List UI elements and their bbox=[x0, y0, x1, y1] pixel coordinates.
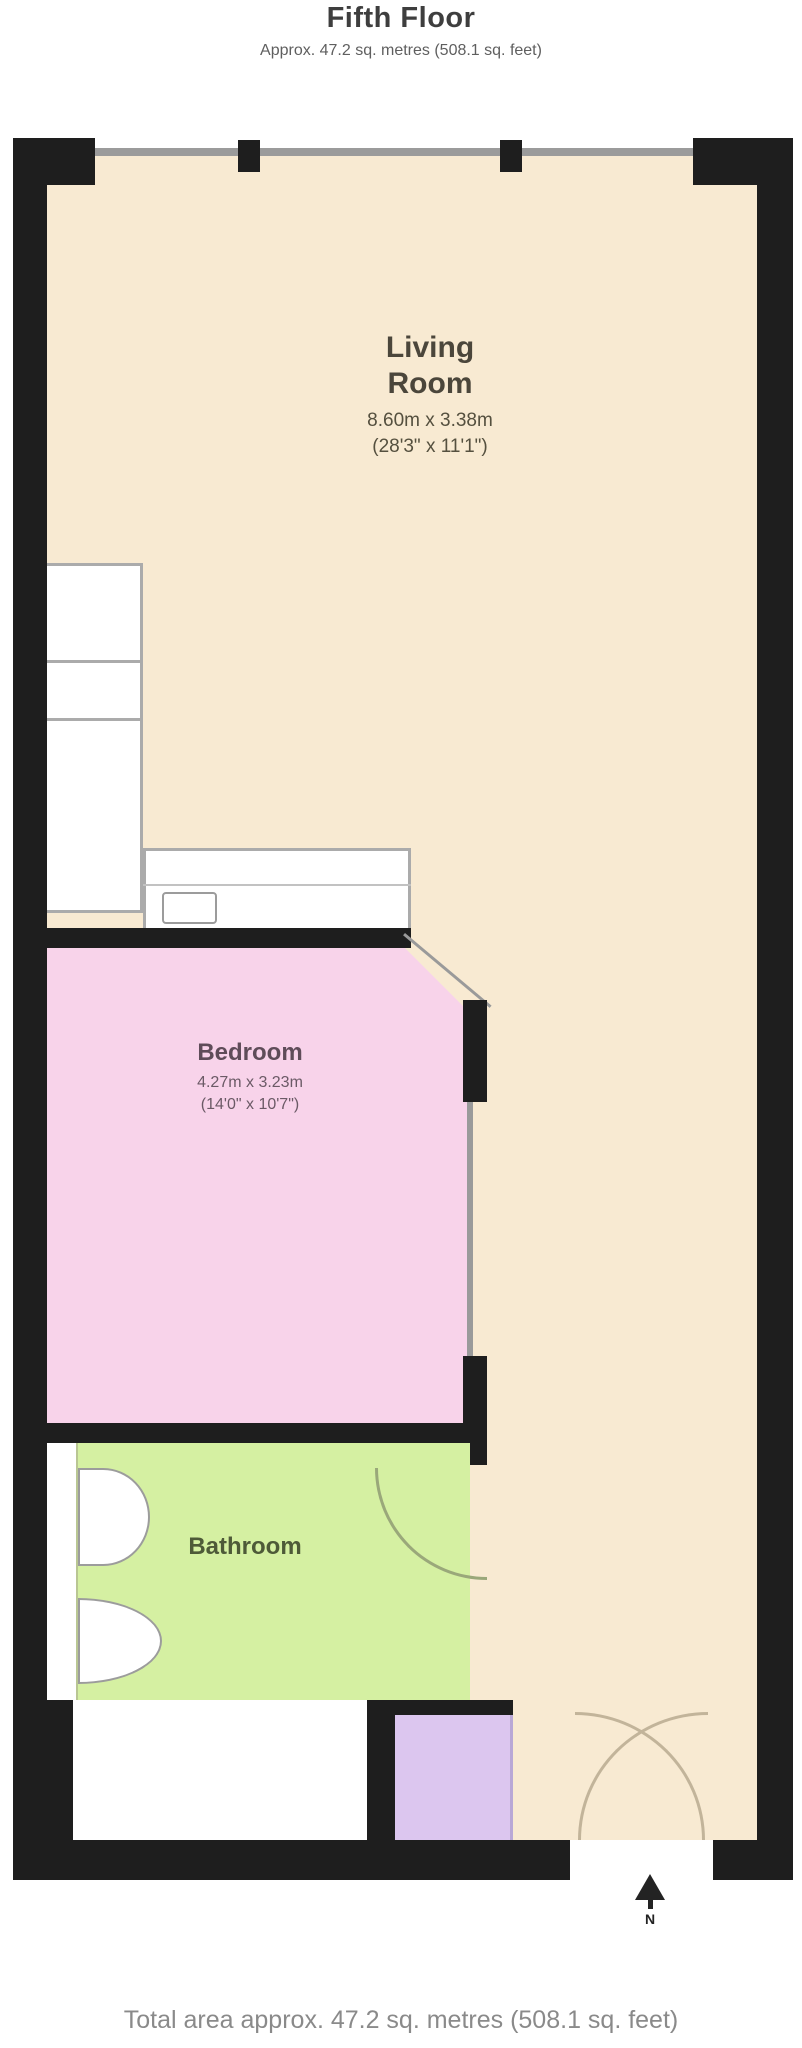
page-title: Fifth Floor bbox=[0, 2, 802, 35]
compass-north-label: N bbox=[618, 1911, 682, 1927]
living-room-name-line1: Living bbox=[290, 330, 570, 366]
bedroom-wall-opening bbox=[467, 1102, 473, 1356]
wall-bedroom-bathroom bbox=[13, 1423, 487, 1443]
wall-bedroom-right-upper bbox=[463, 1000, 487, 1102]
wall-living-bedroom bbox=[13, 928, 411, 948]
bedroom-area bbox=[47, 948, 470, 1423]
page-subtitle: Approx. 47.2 sq. metres (508.1 sq. feet) bbox=[0, 42, 802, 60]
window-glass-line bbox=[95, 148, 693, 156]
window-mullion bbox=[500, 140, 522, 172]
window-mullion bbox=[238, 140, 260, 172]
total-area-note: Total area approx. 47.2 sq. metres (508.… bbox=[0, 2006, 802, 2035]
living-room-dims-metric: 8.60m x 3.38m bbox=[290, 408, 570, 434]
bedroom-name: Bedroom bbox=[140, 1038, 360, 1068]
wall-bottom-right bbox=[713, 1840, 793, 1880]
floor-plan-page: Fifth Floor Approx. 47.2 sq. metres (508… bbox=[0, 0, 802, 2048]
wardrobe-divider bbox=[47, 718, 143, 721]
wall-closet-top bbox=[367, 1700, 513, 1715]
bedroom-dims-metric: 4.27m x 3.23m bbox=[140, 1072, 360, 1094]
hallway-area bbox=[73, 1700, 367, 1840]
window-band bbox=[95, 128, 693, 148]
bathroom-name: Bathroom bbox=[135, 1533, 355, 1561]
closet-edge-line bbox=[510, 1715, 513, 1840]
wall-bottom-left bbox=[13, 1840, 570, 1880]
living-room-label: Living Room 8.60m x 3.38m (28'3" x 11'1"… bbox=[290, 330, 570, 460]
bedroom-dims-imperial: (14'0" x 10'7") bbox=[140, 1094, 360, 1116]
wardrobe-divider bbox=[47, 660, 143, 663]
wardrobe-notch bbox=[47, 563, 143, 913]
north-arrow-stem bbox=[648, 1900, 653, 1909]
wall-right bbox=[757, 140, 793, 1880]
north-arrow-icon bbox=[635, 1874, 665, 1900]
bathroom-fixture-strip bbox=[47, 1443, 78, 1700]
closet-area bbox=[395, 1715, 510, 1840]
wall-left bbox=[13, 140, 47, 1880]
living-room-name-line2: Room bbox=[290, 366, 570, 402]
compass-north-arrow: N bbox=[618, 1874, 682, 1927]
kitchen-counter-edge bbox=[143, 884, 411, 886]
bedroom-label: Bedroom 4.27m x 3.23m (14'0" x 10'7") bbox=[140, 1038, 360, 1116]
wall-pier bbox=[13, 1700, 73, 1840]
kitchen-sink-icon bbox=[162, 892, 217, 924]
living-room-dims-imperial: (28'3" x 11'1") bbox=[290, 434, 570, 460]
wall-closet-left bbox=[367, 1715, 395, 1843]
